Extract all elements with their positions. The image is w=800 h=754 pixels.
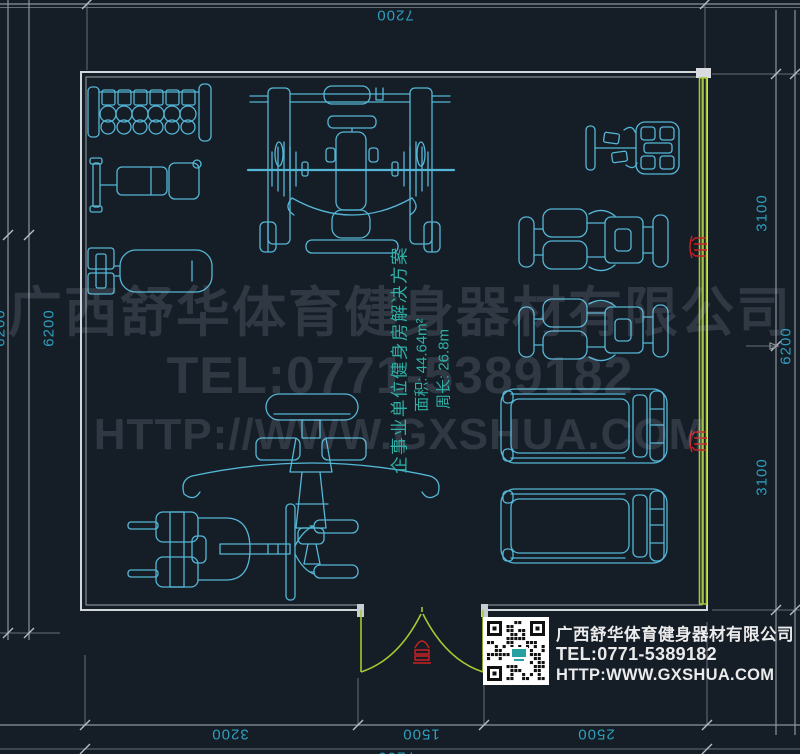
recumbent-machine-drawing [519, 209, 668, 271]
dumbbell-rack-drawing [88, 84, 211, 141]
dim-left-edge-partial: 6200 [0, 309, 9, 346]
dim-top-total: 7200 [376, 7, 413, 24]
dim-bottom-total: 7200 [377, 749, 414, 754]
leg-press-machine-drawing [128, 504, 358, 600]
dim-right-total: 6200 [778, 327, 795, 364]
dim-bottom-left: 3200 [211, 726, 248, 743]
info-tel: TEL:0771-5389182 [556, 644, 717, 665]
cad-floorplan-canvas: 广西舒华体育健身器材有限公司 TEL:0771-5389182 HTTP://W… [0, 0, 800, 754]
dim-bottom-door: 1500 [402, 726, 439, 743]
dim-bottom-right: 2500 [577, 726, 614, 743]
dim-right-upper: 3100 [754, 194, 771, 231]
treadmill-drawing [501, 489, 667, 563]
qr-code [483, 617, 549, 685]
wall-corner-cap [696, 68, 711, 78]
qr-center-logo [512, 649, 526, 657]
room-label-perimeter: 周长: 26.8m [433, 329, 454, 409]
exercise-bike-drawing [586, 122, 679, 174]
adjustable-bench-drawing [90, 158, 201, 212]
room-label-title: 企事业单位健身房解决方案 [387, 246, 412, 474]
info-url: HTTP:WWW.GXSHUA.COM [556, 666, 774, 685]
smith-machine-drawing [248, 86, 454, 253]
info-company: 广西舒华体育健身器材有限公司 [556, 621, 794, 645]
window-marker-icon [690, 236, 707, 258]
dim-right-lower: 3100 [754, 458, 771, 495]
room-label-area: 面积: 44.64m² [411, 318, 432, 411]
entrance-door [361, 607, 483, 672]
door-jamb-right-cap [481, 604, 488, 617]
door-marker-icon [413, 641, 431, 663]
dim-left-total: 6200 [41, 309, 58, 346]
